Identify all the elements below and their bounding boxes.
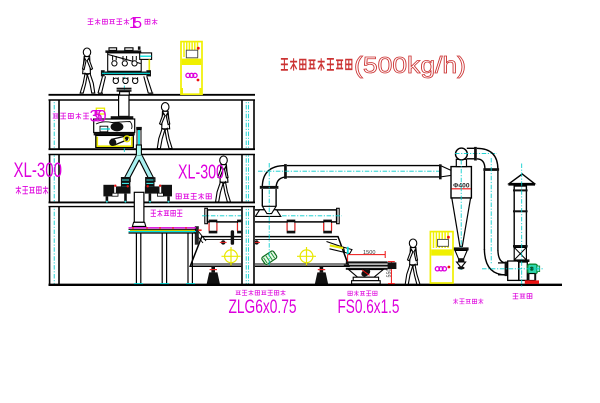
svg-text:(500kg/h): (500kg/h) bbox=[354, 52, 466, 78]
svg-text:ZLG6x0.75: ZLG6x0.75 bbox=[229, 297, 297, 318]
svg-text:1.5: 1.5 bbox=[129, 15, 142, 32]
svg-text:550: 550 bbox=[386, 269, 392, 278]
svg-text:XL-300: XL-300 bbox=[14, 159, 63, 182]
svg-text:XL-300: XL-300 bbox=[178, 162, 224, 184]
svg-text:1500: 1500 bbox=[363, 250, 375, 256]
svg-text:350: 350 bbox=[90, 108, 107, 126]
svg-text:FS0.6x1.5: FS0.6x1.5 bbox=[338, 297, 400, 318]
